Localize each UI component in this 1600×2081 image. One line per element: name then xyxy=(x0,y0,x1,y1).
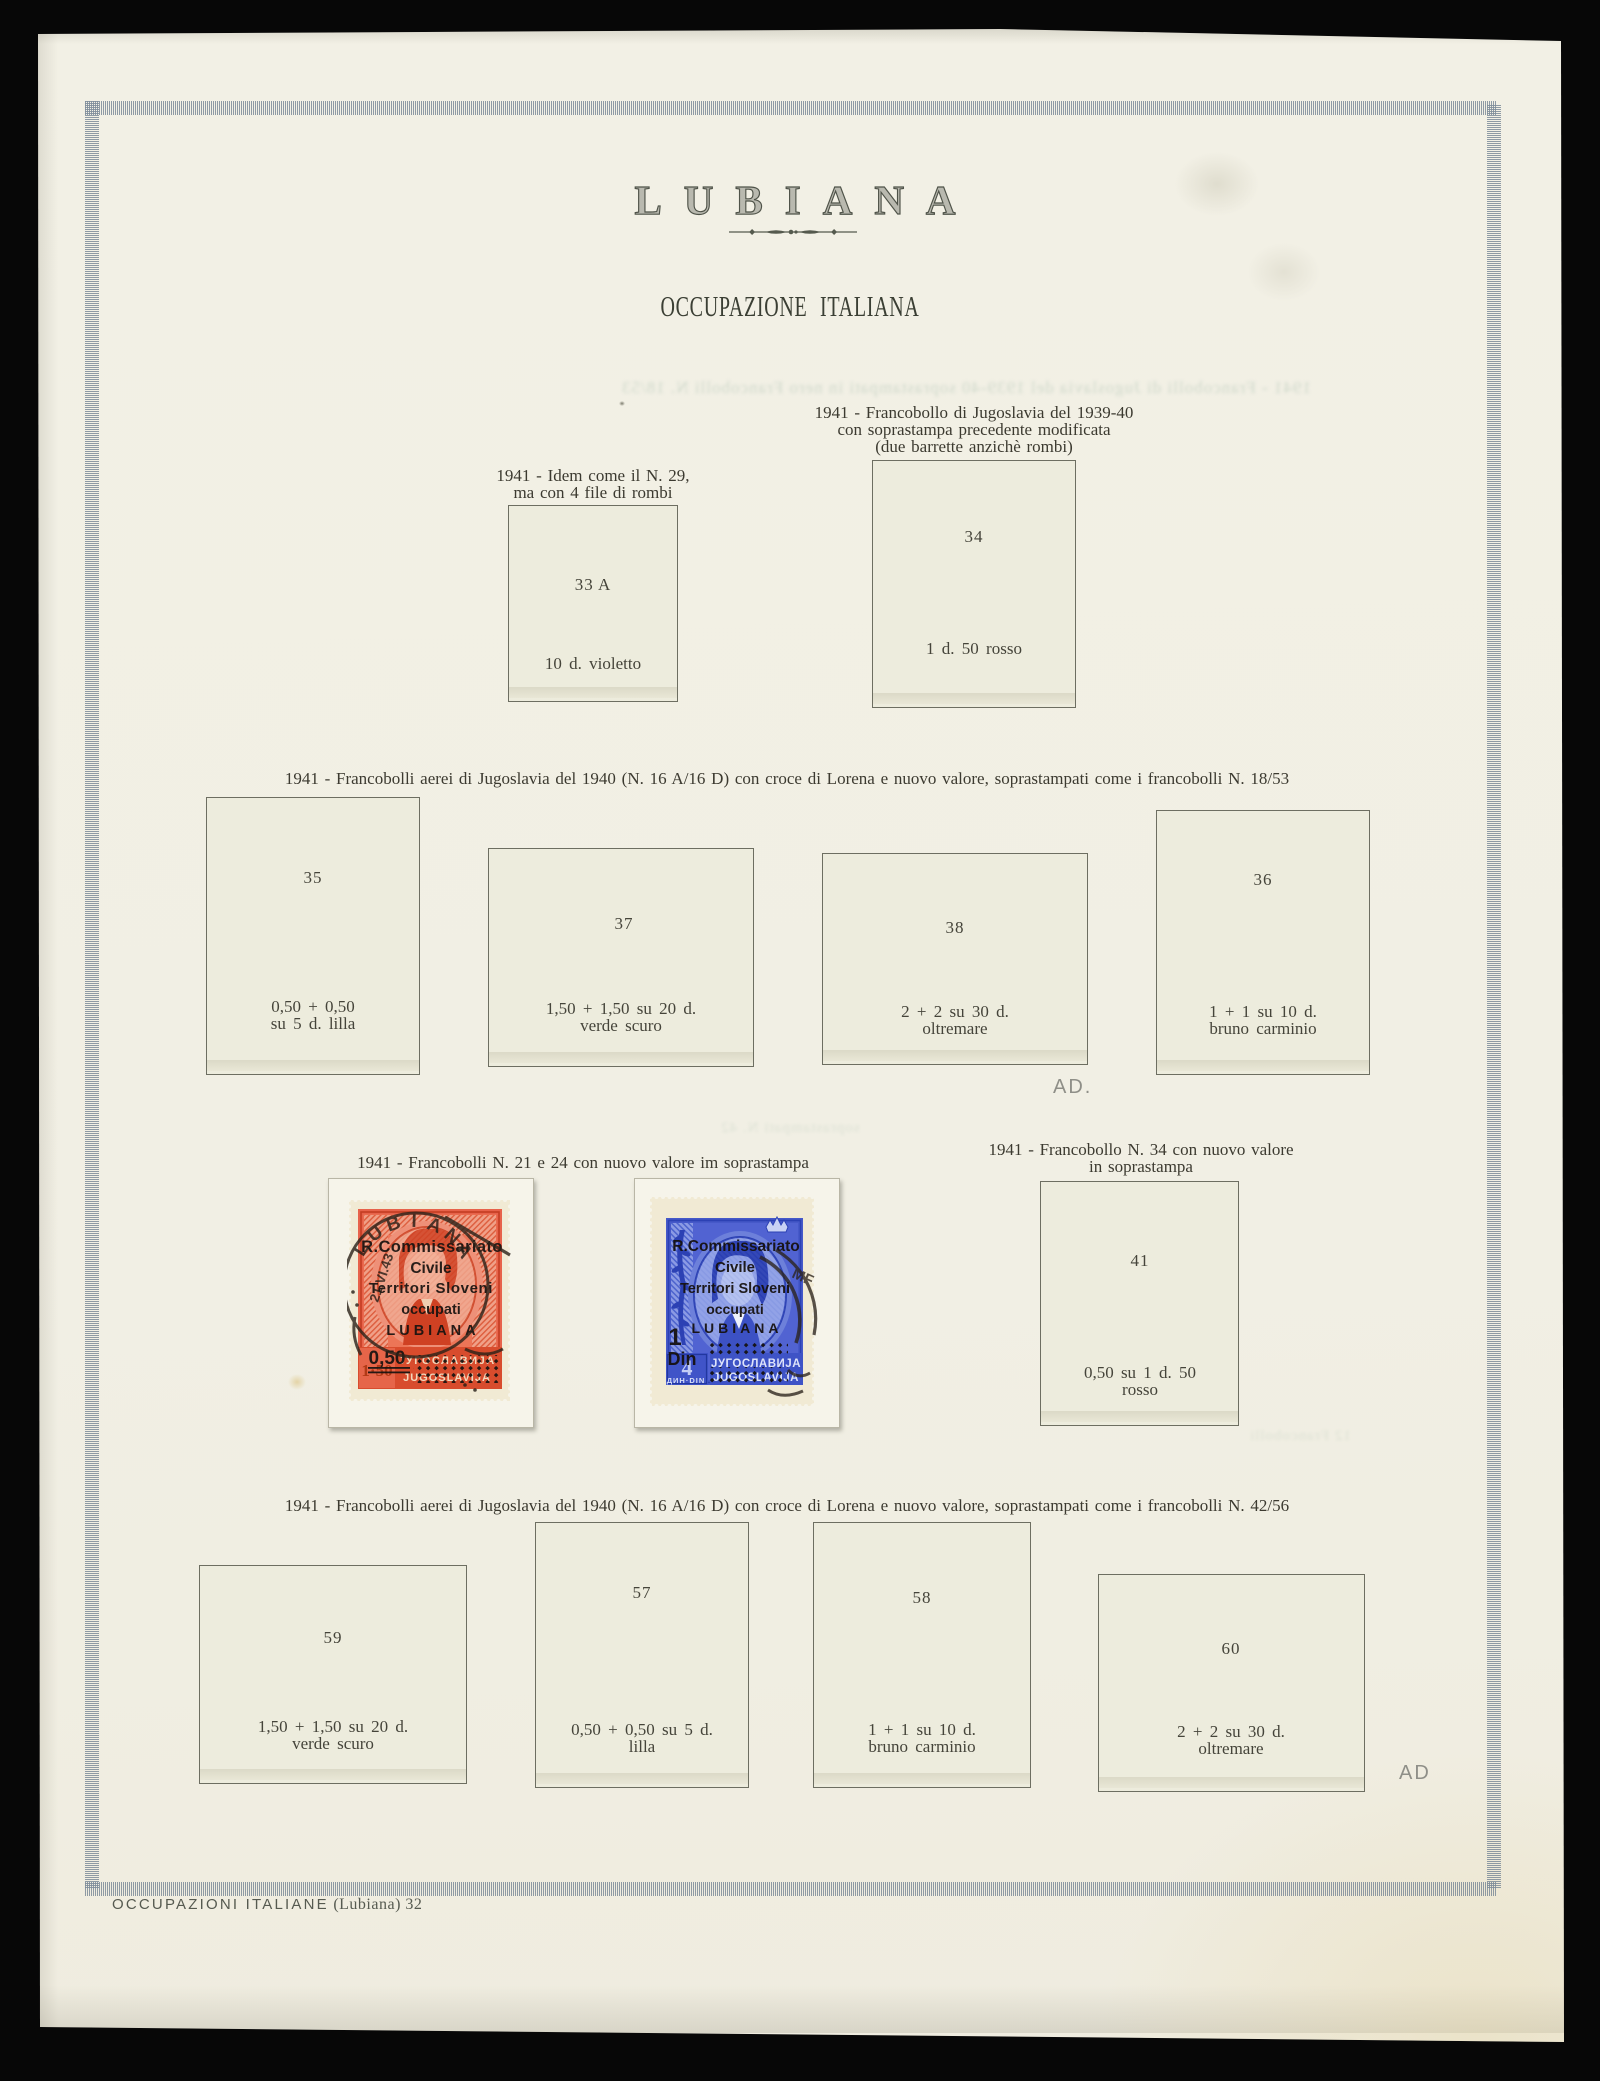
svg-text:Din: Din xyxy=(668,1349,697,1369)
svg-text:Territori Sloveni: Territori Sloveni xyxy=(680,1281,790,1297)
svg-text:1: 1 xyxy=(668,1324,681,1351)
svg-text:Civile: Civile xyxy=(715,1259,755,1276)
svg-text:occupati: occupati xyxy=(401,1302,461,1318)
svg-text:occupati: occupati xyxy=(706,1301,764,1317)
svg-text:I: I xyxy=(411,1211,417,1232)
svg-text:LUBIANA: LUBIANA xyxy=(692,1320,783,1336)
svg-text:Civile: Civile xyxy=(410,1260,452,1277)
svg-text:ДИН·DIN: ДИН·DIN xyxy=(667,1376,706,1385)
